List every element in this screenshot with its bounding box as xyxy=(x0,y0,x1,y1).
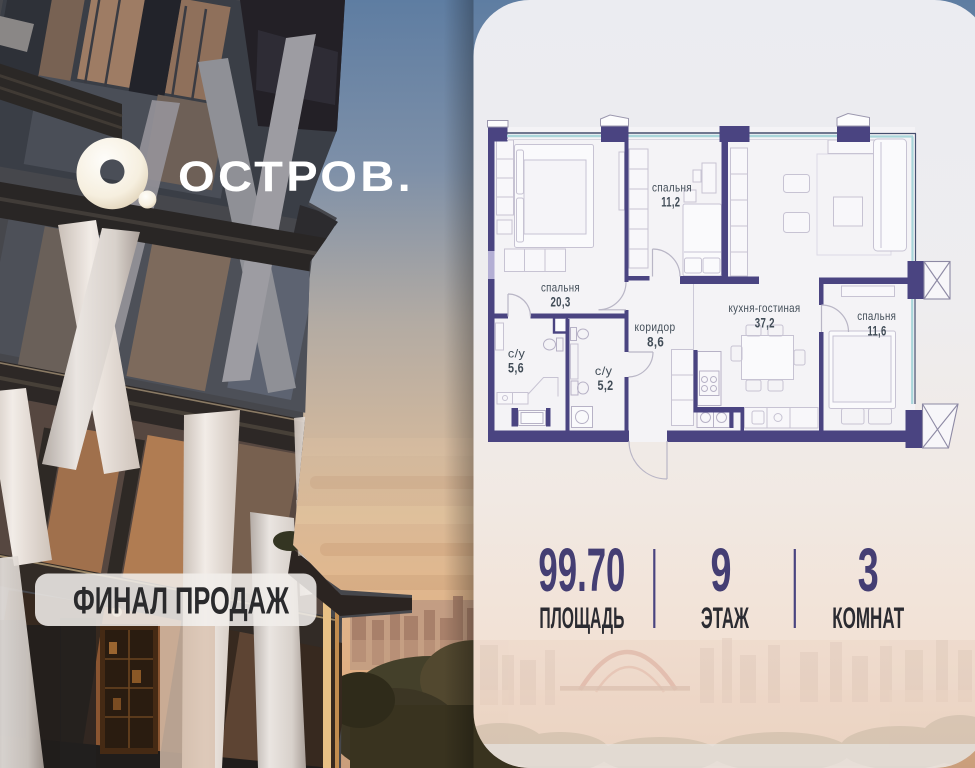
svg-text:5,6: 5,6 xyxy=(508,361,524,376)
svg-text:ПЛОЩАДЬ: ПЛОЩАДЬ xyxy=(539,602,624,635)
svg-text:спальня: спальня xyxy=(857,309,896,323)
svg-text:20,3: 20,3 xyxy=(551,295,571,310)
svg-text:11,6: 11,6 xyxy=(868,324,887,339)
svg-text:9: 9 xyxy=(711,536,732,604)
svg-text:спальня: спальня xyxy=(541,281,580,295)
svg-text:ФИНАЛ ПРОДАЖ: ФИНАЛ ПРОДАЖ xyxy=(73,581,289,623)
svg-text:с/у: с/у xyxy=(595,364,613,378)
svg-text:с/у: с/у xyxy=(508,347,526,361)
svg-text:3: 3 xyxy=(858,536,879,604)
svg-text:КОМНАТ: КОМНАТ xyxy=(832,602,904,635)
svg-text:кухня-гостиная: кухня-гостиная xyxy=(729,301,801,315)
svg-text:99.70: 99.70 xyxy=(538,536,625,604)
svg-text:спальня: спальня xyxy=(652,181,692,195)
svg-text:коридор: коридор xyxy=(635,320,676,334)
svg-text:8,6: 8,6 xyxy=(647,335,664,350)
svg-text:11,2: 11,2 xyxy=(661,195,680,210)
svg-text:ОСТРОВ.: ОСТРОВ. xyxy=(178,153,414,201)
svg-text:ЭТАЖ: ЭТАЖ xyxy=(701,602,749,635)
svg-text:37,2: 37,2 xyxy=(755,316,775,331)
svg-text:5,2: 5,2 xyxy=(598,378,614,393)
